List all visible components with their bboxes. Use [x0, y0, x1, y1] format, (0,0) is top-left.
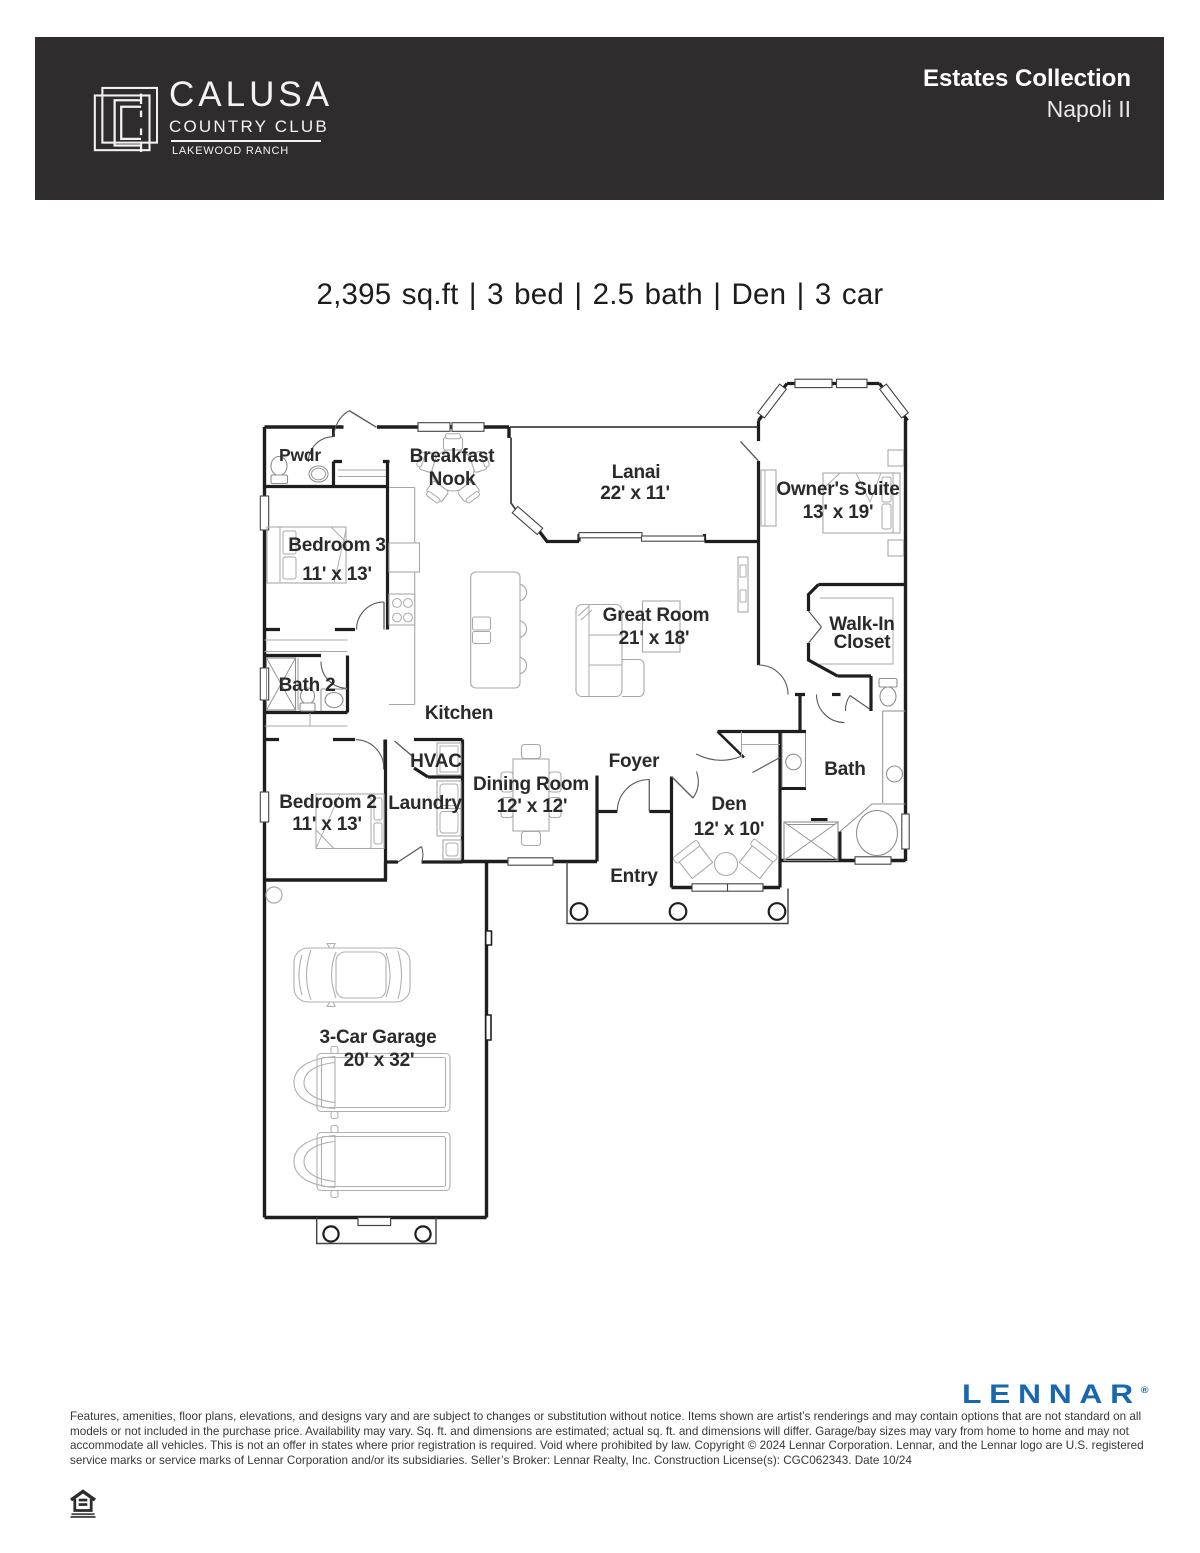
svg-text:21' x 18': 21' x 18' [619, 628, 690, 649]
svg-text:12' x 12': 12' x 12' [497, 796, 568, 817]
svg-text:12' x 10': 12' x 10' [694, 819, 765, 840]
svg-text:3-Car Garage: 3-Car Garage [320, 1027, 437, 1048]
svg-text:Dining Room: Dining Room [473, 774, 589, 795]
svg-text:Bath 2: Bath 2 [279, 675, 336, 696]
svg-text:11' x 13': 11' x 13' [292, 814, 362, 835]
svg-text:Entry: Entry [610, 866, 658, 887]
svg-text:HVAC: HVAC [410, 751, 462, 772]
svg-text:Closet: Closet [834, 632, 892, 653]
svg-text:13' x 19': 13' x 19' [803, 502, 874, 523]
svg-text:11' x 13': 11' x 13' [302, 564, 372, 585]
svg-text:Nook: Nook [429, 469, 476, 490]
svg-text:Den: Den [711, 794, 746, 815]
svg-text:Laundry: Laundry [388, 793, 462, 814]
svg-text:Pwdr: Pwdr [279, 445, 321, 465]
svg-text:Foyer: Foyer [609, 751, 661, 772]
svg-text:Great Room: Great Room [603, 605, 710, 626]
svg-text:Kitchen: Kitchen [425, 703, 493, 724]
svg-text:Bedroom 2: Bedroom 2 [279, 792, 376, 813]
svg-text:Bath: Bath [824, 759, 865, 780]
svg-text:Breakfast: Breakfast [410, 446, 496, 467]
svg-text:Owner's Suite: Owner's Suite [776, 479, 899, 500]
svg-text:20' x 32': 20' x 32' [344, 1050, 415, 1071]
svg-text:Bedroom 3: Bedroom 3 [288, 535, 385, 556]
svg-text:Lanai: Lanai [612, 462, 661, 483]
svg-text:22' x 11': 22' x 11' [600, 483, 670, 504]
